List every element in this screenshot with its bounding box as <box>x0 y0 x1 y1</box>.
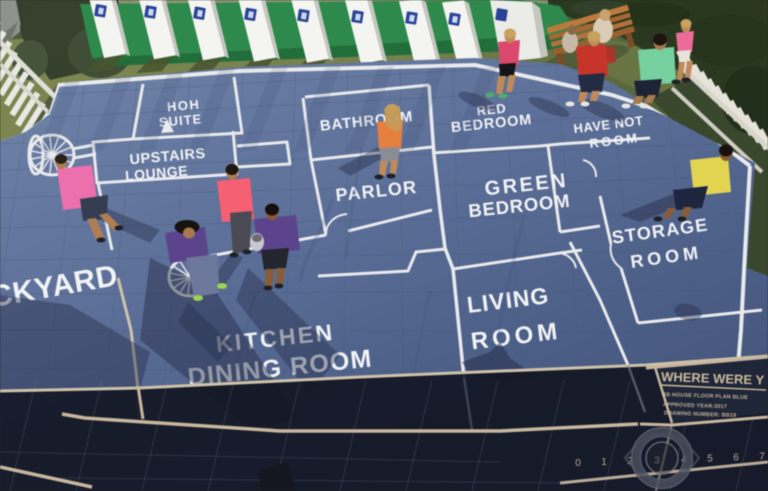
svg-text:0: 0 <box>575 458 581 469</box>
svg-text:5: 5 <box>707 454 713 465</box>
svg-text:1: 1 <box>601 457 607 468</box>
svg-text:6: 6 <box>733 453 739 464</box>
svg-text:7: 7 <box>759 452 765 463</box>
